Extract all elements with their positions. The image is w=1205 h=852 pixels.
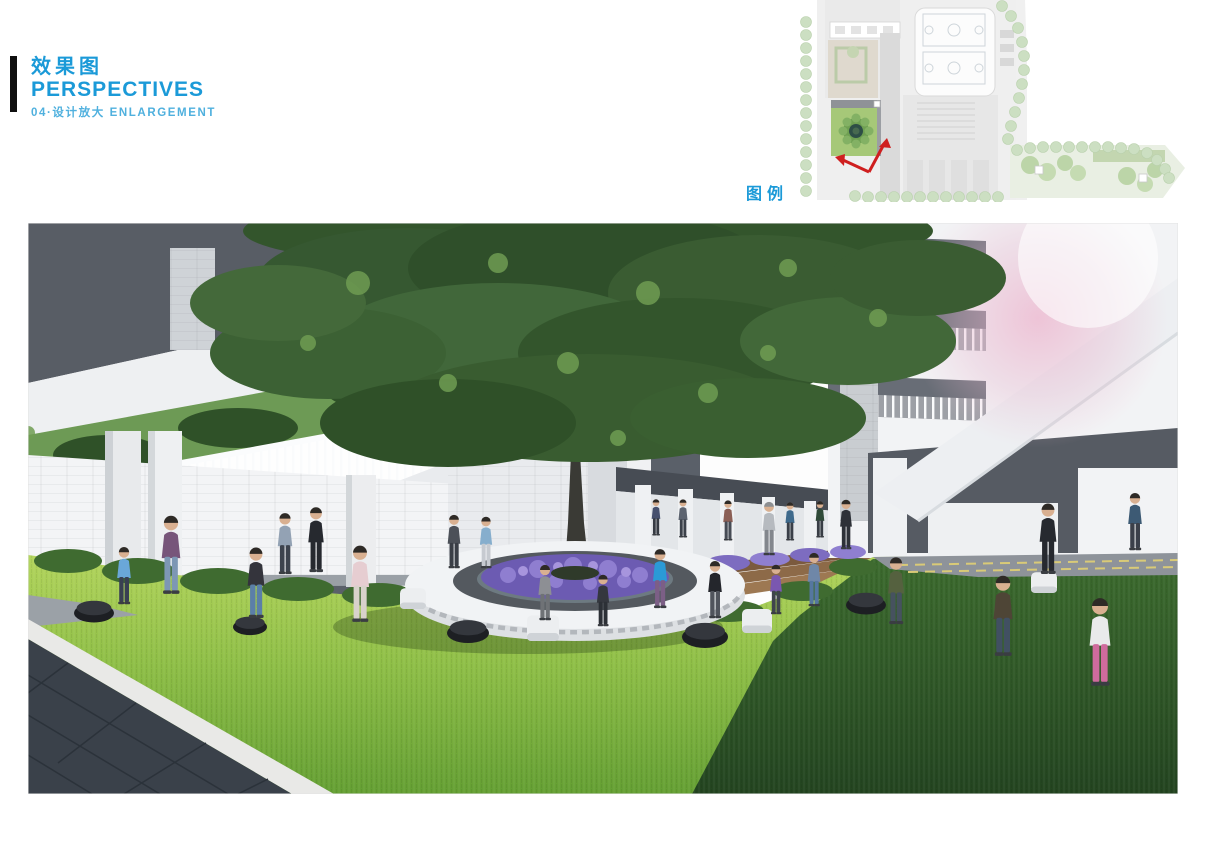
site-key-map bbox=[795, 0, 1185, 202]
black-pouf-seat bbox=[846, 593, 886, 615]
white-cube-seat bbox=[400, 588, 426, 609]
page-subtitle: 04·设计放大 ENLARGEMENT bbox=[31, 104, 216, 120]
title-accent-bar bbox=[10, 56, 17, 112]
keymap-highlighted-courtyard bbox=[831, 100, 881, 156]
site-key-map-drawing bbox=[795, 0, 1185, 202]
courtyard-perspective-rendering bbox=[28, 223, 1178, 794]
page-title-chinese: 效果图 bbox=[31, 56, 216, 78]
white-cube-seat bbox=[742, 609, 772, 633]
rendering-drawing bbox=[28, 223, 1178, 794]
keymap-garden-wing bbox=[1010, 145, 1185, 198]
black-pouf-seat bbox=[682, 623, 728, 648]
title-block: 效果图 PERSPECTIVES 04·设计放大 ENLARGEMENT bbox=[10, 56, 216, 120]
page-title-english: PERSPECTIVES bbox=[31, 78, 216, 101]
black-pouf-seat bbox=[447, 620, 489, 643]
black-pouf-seat bbox=[233, 617, 267, 636]
white-cube-seat bbox=[1031, 572, 1057, 593]
black-pouf-seat bbox=[74, 601, 114, 623]
legend-label: 图例 bbox=[746, 180, 788, 204]
presentation-page: 效果图 PERSPECTIVES 04·设计放大 ENLARGEMENT 图例 bbox=[0, 0, 1205, 852]
